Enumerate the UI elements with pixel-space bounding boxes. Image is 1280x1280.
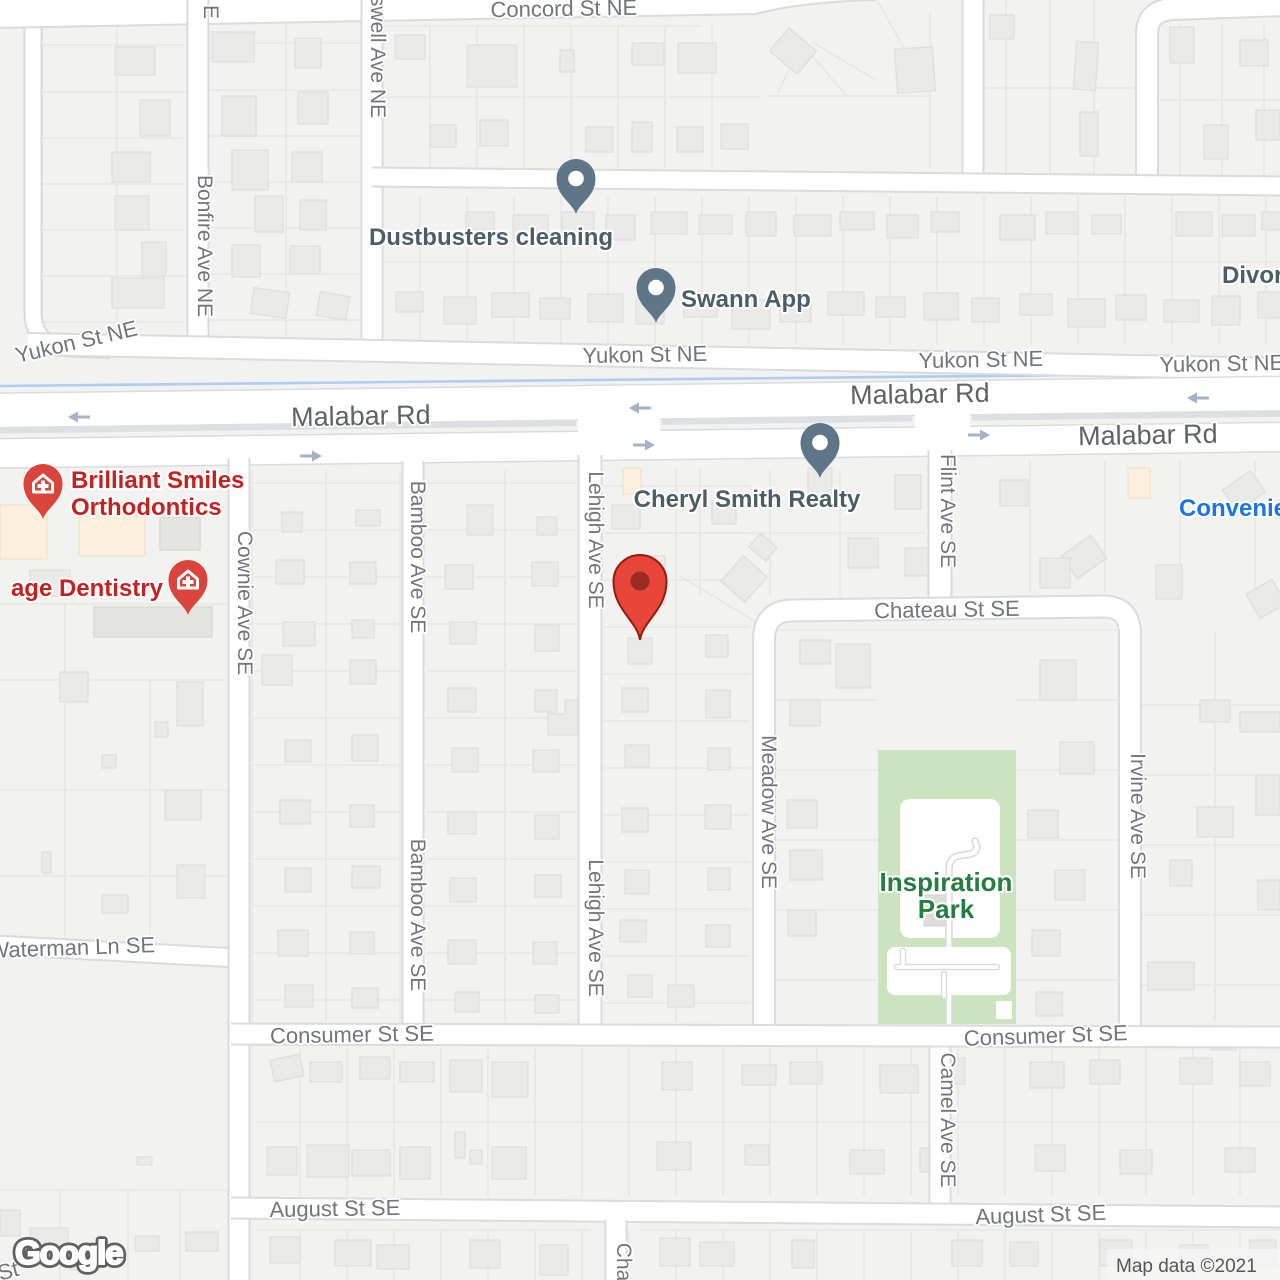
svg-text:Divorce: Divorce	[1222, 262, 1280, 289]
svg-text:Park: Park	[918, 894, 975, 924]
svg-text:age Dentistry: age Dentistry	[11, 575, 164, 602]
svg-text:Map data ©2021: Map data ©2021	[1116, 1256, 1257, 1277]
svg-text:Bamboo Ave SE: Bamboo Ave SE	[406, 481, 429, 634]
svg-text:Dustbusters cleaning: Dustbusters cleaning	[369, 224, 613, 251]
svg-text:Chateau St SE: Chateau St SE	[874, 596, 1020, 624]
svg-text:Camel Ave SE: Camel Ave SE	[936, 1052, 959, 1187]
svg-text:Cheryl Smith Realty: Cheryl Smith Realty	[634, 486, 861, 513]
svg-text:Meadow Ave SE: Meadow Ave SE	[757, 735, 780, 889]
svg-text:Irvine Ave SE: Irvine Ave SE	[1126, 753, 1149, 879]
svg-text:Lehigh Ave SE: Lehigh Ave SE	[584, 859, 607, 996]
svg-text:Malabar Rd: Malabar Rd	[850, 378, 990, 410]
svg-text:Consumer St SE: Consumer St SE	[270, 1021, 434, 1049]
svg-text:Flint Ave SE: Flint Ave SE	[936, 454, 959, 568]
svg-text:E: E	[199, 5, 222, 19]
svg-text:Cha: Cha	[612, 1243, 635, 1280]
svg-text:Yukon St NE: Yukon St NE	[1159, 350, 1280, 377]
svg-text:Yukon St NE: Yukon St NE	[582, 341, 707, 368]
svg-text:Bamboo Ave SE: Bamboo Ave SE	[406, 839, 429, 992]
svg-text:Inspiration: Inspiration	[880, 867, 1013, 897]
svg-text:Convenience: Convenience	[1179, 495, 1280, 522]
svg-text:Cownie Ave SE: Cownie Ave SE	[233, 531, 256, 675]
svg-text:Malabar Rd: Malabar Rd	[291, 400, 431, 432]
svg-text:Concord St NE: Concord St NE	[490, 0, 637, 22]
svg-text:Lehigh Ave SE: Lehigh Ave SE	[584, 471, 607, 608]
svg-text:Swann App: Swann App	[681, 286, 811, 313]
svg-text:Orthodontics: Orthodontics	[71, 494, 222, 521]
svg-text:Malabar Rd: Malabar Rd	[1078, 419, 1218, 451]
svg-text:Yukon St NE: Yukon St NE	[918, 346, 1043, 373]
svg-text:Google: Google	[15, 1234, 123, 1271]
svg-text:Brilliant Smiles: Brilliant Smiles	[71, 467, 244, 494]
svg-text:swell Ave NE: swell Ave NE	[366, 0, 389, 118]
svg-text:August St SE: August St SE	[269, 1195, 400, 1222]
svg-text:August St SE: August St SE	[975, 1200, 1107, 1230]
svg-text:Bonfire Ave NE: Bonfire Ave NE	[193, 175, 216, 317]
